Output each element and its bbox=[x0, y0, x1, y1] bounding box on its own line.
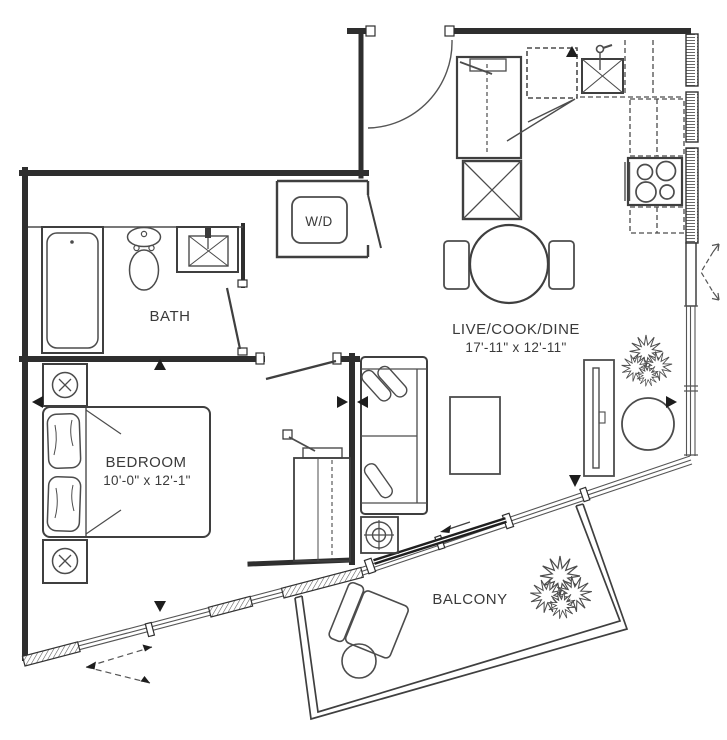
bedroom-door bbox=[256, 353, 341, 379]
entry-door-swing bbox=[368, 40, 452, 128]
kitchen bbox=[507, 40, 684, 233]
vanity-sink bbox=[177, 227, 238, 272]
service-shaft bbox=[463, 161, 521, 219]
hall-closet bbox=[457, 57, 521, 158]
bed bbox=[43, 407, 210, 537]
room-label-bath: BATH bbox=[150, 308, 191, 325]
balcony-table bbox=[342, 644, 376, 678]
toilet bbox=[128, 228, 161, 291]
dining-chair bbox=[444, 241, 469, 289]
east-window-wall bbox=[684, 34, 719, 456]
room-dims-bedroom: 10'-0" x 12'-1" bbox=[103, 473, 191, 488]
door-jamb bbox=[445, 26, 454, 36]
throw-pillow bbox=[359, 364, 409, 500]
living-window bbox=[684, 306, 698, 456]
room-label-bedroom: BEDROOM bbox=[105, 454, 186, 471]
bathroom bbox=[42, 227, 238, 353]
room-label-laundry: W/D bbox=[305, 214, 332, 229]
dining-set bbox=[444, 225, 574, 303]
bath-door bbox=[227, 280, 247, 355]
bedroom-window-arrows bbox=[86, 645, 152, 684]
nightstand bbox=[43, 540, 87, 583]
pillow bbox=[47, 476, 81, 531]
room-label-balcony: BALCONY bbox=[432, 591, 507, 608]
side-table-light bbox=[361, 517, 398, 553]
floor-plan: BATH W/D LIVE/COOK/DINE 17'-11" x 12'-11… bbox=[0, 0, 727, 740]
vent-arrow bbox=[701, 252, 713, 292]
door-jamb bbox=[366, 26, 375, 36]
cabinet-end-panel bbox=[507, 99, 575, 141]
sofa bbox=[359, 357, 427, 514]
dining-table bbox=[470, 225, 548, 303]
pillow bbox=[47, 413, 81, 468]
nightstand bbox=[43, 364, 87, 406]
tree-icon bbox=[523, 556, 597, 621]
bedroom-furniture bbox=[43, 364, 350, 583]
dining-chair bbox=[549, 241, 574, 289]
floor-plan-drawing: BATH W/D LIVE/COOK/DINE 17'-11" x 12'-11… bbox=[0, 0, 727, 740]
south-facade bbox=[22, 456, 692, 683]
wall-pier bbox=[208, 596, 252, 617]
wall-pier bbox=[22, 642, 80, 666]
bathtub bbox=[42, 227, 103, 353]
wardrobe bbox=[283, 430, 350, 561]
kitchen-sink bbox=[582, 45, 623, 93]
lounge-chair bbox=[328, 581, 411, 661]
room-label-living: LIVE/COOK/DINE bbox=[452, 321, 580, 338]
room-dims-living: 17'-11" x 12'-11" bbox=[465, 340, 566, 355]
tv-unit bbox=[584, 360, 614, 476]
stove bbox=[625, 158, 682, 205]
coffee-table bbox=[450, 397, 500, 474]
tree-icon bbox=[616, 335, 677, 388]
